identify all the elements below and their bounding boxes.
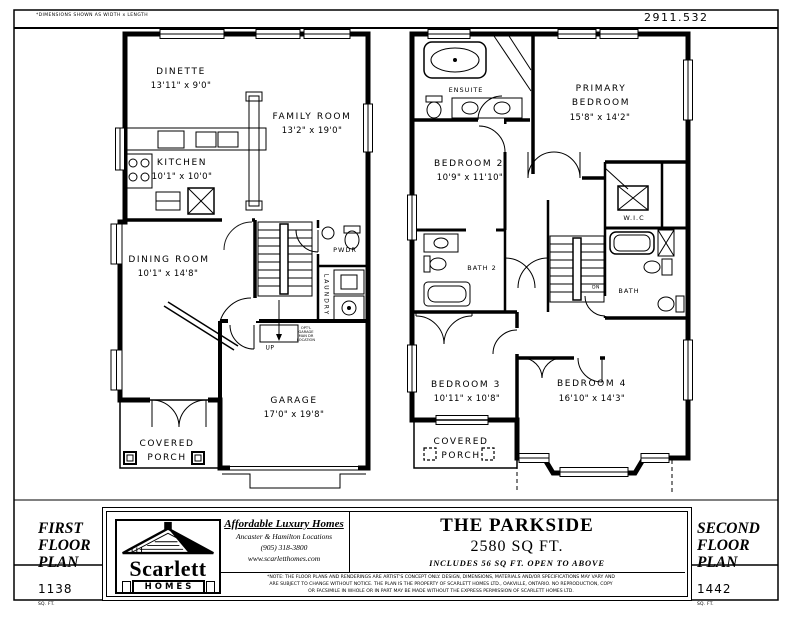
room-dims-bedroom-3: 10'11" x 10'8": [434, 394, 500, 404]
room-label-family-room: FAMILY ROOM: [273, 110, 352, 124]
logo-ornament-left: [122, 581, 131, 594]
room-dims-garage: 17'0" x 19'8": [264, 410, 325, 420]
room-label-covered-porch-second: COVERED PORCH: [433, 435, 488, 463]
room-label-powder-room: PWDR: [333, 246, 357, 254]
builder-contact: Affordable Luxury Homes Ancaster & Hamil…: [221, 517, 347, 564]
title-block-rule: [219, 572, 685, 573]
room-label-bedroom-3: BEDROOM 3: [431, 378, 501, 392]
room-dims-bedroom-4: 16'10" x 14'3": [559, 394, 625, 404]
plan-number: 2911.532: [644, 11, 709, 24]
title-block: Scarlett HOMES Affordable Luxury Homes A…: [102, 507, 692, 601]
room-dims-dining-room: 10'1" x 14'8": [138, 269, 199, 279]
first-floor-area-value: 1138: [38, 582, 73, 596]
first-floor-area-unit: SQ. FT.: [38, 602, 55, 607]
model-name: THE PARKSIDE: [351, 514, 683, 537]
second-floor-plan-title-text: SECOND FLOOR PLAN: [697, 520, 760, 571]
logo-ornament-right: [206, 581, 215, 594]
first-floor-plan-title-text: FIRST FLOOR PLAN: [38, 520, 91, 571]
stair-direction-dn: DN: [592, 286, 600, 291]
model-info: THE PARKSIDE 2580 SQ FT. INCLUDES 56 SQ …: [351, 514, 683, 570]
room-label-bedroom-2: BEDROOM 2: [434, 157, 504, 171]
disclaimer-text: *NOTE: THE FLOOR PLANS AND RENDERINGS AR…: [267, 575, 615, 596]
room-label-dining-room: DINING ROOM: [128, 253, 209, 267]
builder-tagline: Affordable Luxury Homes: [221, 517, 347, 531]
room-label-dinette: DINETTE: [156, 65, 206, 79]
title-block-divider: [349, 512, 350, 572]
first-floor-plan-title: FIRST FLOOR PLAN 1138 SQ. FT.: [38, 503, 91, 628]
room-dims-kitchen: 10'1" x 10'0": [152, 172, 213, 182]
second-floor-plan-title: SECOND FLOOR PLAN 1442 SQ. FT.: [697, 503, 760, 628]
optional-garage-door-note: OPT'L GARAGE MAN DR LOCATION: [297, 326, 315, 343]
first-floor-area: 1138 SQ. FT.: [38, 571, 91, 611]
room-label-bedroom-4: BEDROOM 4: [557, 377, 627, 391]
second-floor-stairs: [550, 236, 604, 302]
room-label-bath: BATH: [618, 287, 639, 295]
second-floor-door-gaps: [466, 116, 609, 362]
room-dims-dinette: 13'11" x 9'0": [151, 81, 212, 91]
title-block-inner-border: Scarlett HOMES Affordable Luxury Homes A…: [106, 511, 688, 597]
stair-direction-up: UP: [265, 345, 274, 352]
room-dims-family-room: 13'2" x 19'0": [282, 126, 343, 136]
room-label-laundry: LAUNDRY: [323, 274, 330, 317]
builder-phone: (905) 318-3800: [221, 542, 347, 553]
room-label-covered-porch-first: COVERED PORCH: [139, 437, 194, 465]
room-label-wic: W.I.C: [623, 214, 644, 222]
room-label-ensuite: ENSUITE: [449, 86, 484, 94]
model-area: 2580 SQ FT.: [351, 537, 683, 557]
second-floor-area-unit: SQ. FT.: [697, 602, 714, 607]
room-dims-primary-bedroom: 15'8" x 14'2": [570, 113, 631, 123]
builder-locations: Ancaster & Hamilton Locations: [221, 531, 347, 542]
plan-sheet: *DIMENSIONS SHOWN AS WIDTH x LENGTH 2911…: [0, 0, 792, 612]
second-floor-area-value: 1442: [697, 582, 732, 596]
builder-logo-name: Scarlett: [117, 559, 219, 579]
first-floor-stairs: [258, 222, 312, 342]
builder-logo-roof-icon: [120, 521, 216, 555]
room-dims-bedroom-2: 10'9" x 11'10": [437, 173, 503, 183]
builder-logo-sub-text: HOMES: [145, 582, 195, 592]
builder-logo-sub: HOMES: [132, 580, 205, 594]
model-note: INCLUDES 56 SQ FT. OPEN TO ABOVE: [351, 557, 683, 570]
second-floor-area: 1442 SQ. FT.: [697, 571, 760, 611]
builder-logo: Scarlett HOMES: [115, 519, 221, 594]
room-label-primary-bedroom: PRIMARY BEDROOM: [572, 82, 630, 110]
room-label-kitchen: KITCHEN: [157, 156, 207, 170]
dimensions-note: *DIMENSIONS SHOWN AS WIDTH x LENGTH: [36, 13, 148, 18]
room-label-garage: GARAGE: [270, 394, 317, 408]
room-label-bath-2: BATH 2: [467, 264, 496, 272]
builder-website: www.scarletthomes.com: [221, 553, 347, 564]
